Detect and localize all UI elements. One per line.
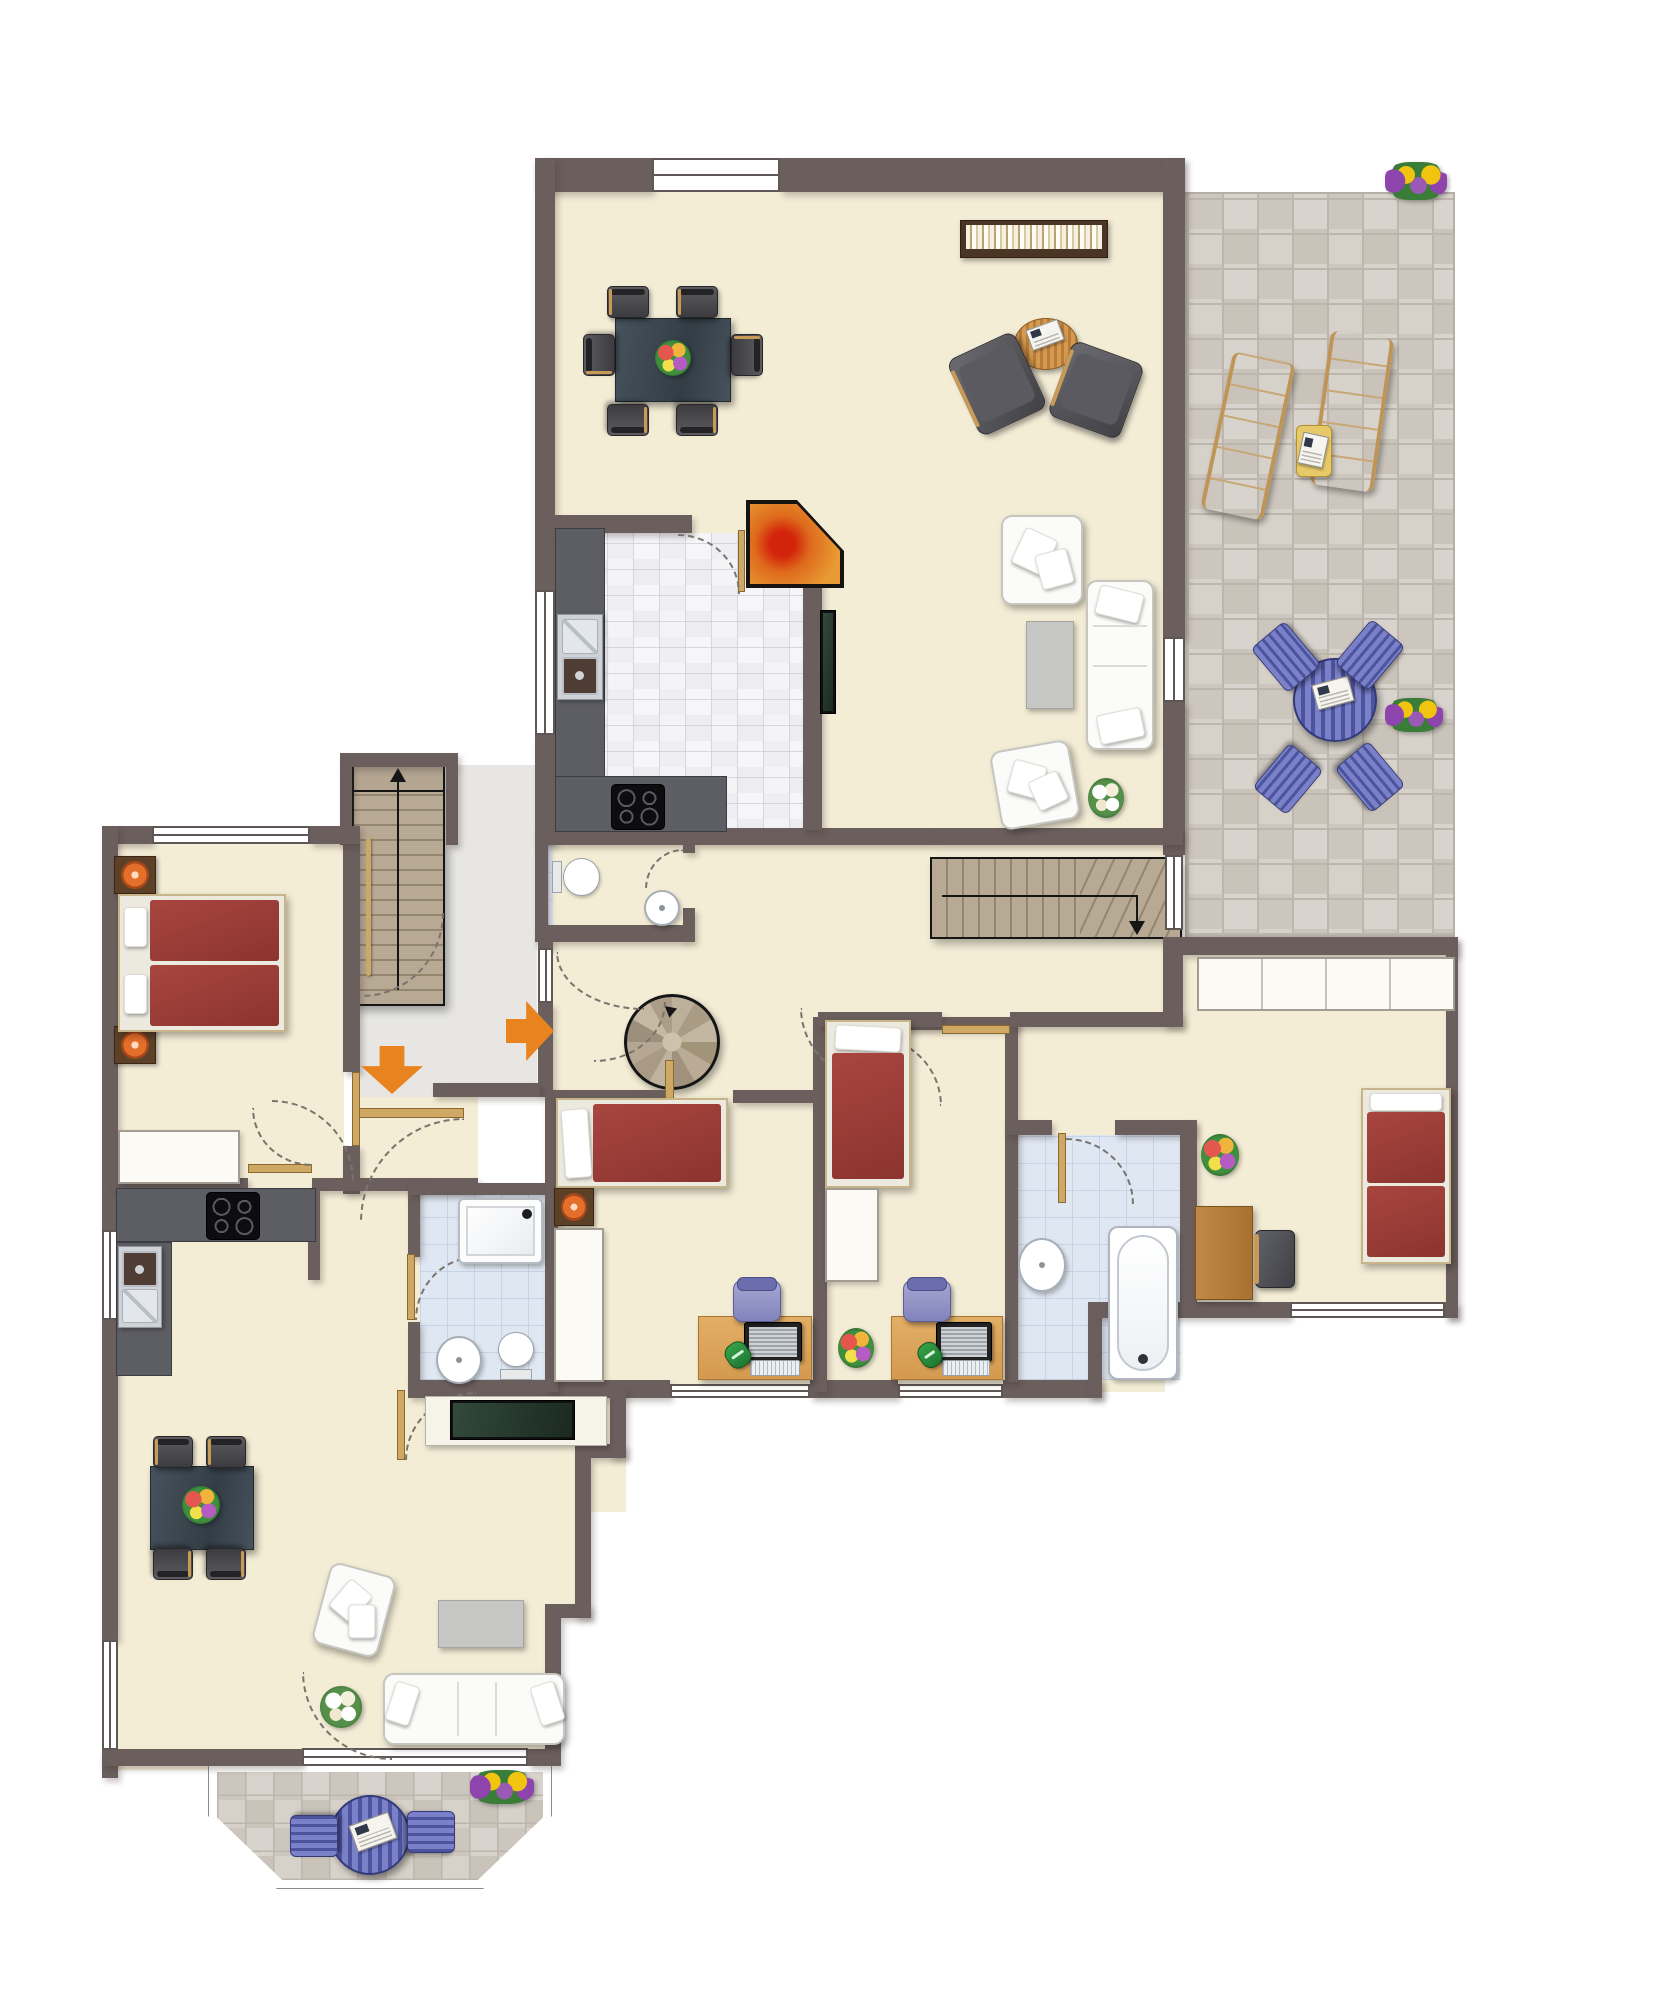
duvet — [150, 965, 280, 1026]
wall — [733, 1090, 813, 1103]
cushion — [1096, 707, 1146, 746]
wall — [343, 842, 360, 1072]
window — [302, 1748, 528, 1766]
door-leaf — [942, 1025, 1010, 1034]
pillow — [124, 907, 147, 947]
stair-direction-line — [1136, 895, 1138, 923]
office-chair — [733, 1280, 781, 1322]
drainboard — [122, 1289, 157, 1323]
dining-chair — [206, 1436, 246, 1468]
vanity-desk — [1195, 1206, 1253, 1300]
cushion — [1034, 548, 1075, 591]
wall — [1005, 1120, 1052, 1135]
single-bed — [825, 1020, 911, 1188]
computer-monitor — [744, 1322, 802, 1362]
wall — [535, 158, 555, 590]
nightstand — [114, 856, 156, 894]
kitchen-sink — [118, 1246, 162, 1328]
window — [1165, 855, 1183, 930]
wall — [1010, 1012, 1183, 1027]
keyboard — [750, 1360, 800, 1376]
flower-box — [1385, 698, 1443, 732]
wall — [1163, 955, 1183, 1027]
flowers — [320, 1686, 362, 1728]
pillow — [1370, 1093, 1442, 1110]
flower-box — [470, 1770, 534, 1804]
shower — [458, 1198, 543, 1264]
double-bed — [118, 894, 286, 1032]
staircase — [930, 857, 1182, 939]
chair — [1255, 1230, 1295, 1288]
table-lamp — [561, 1193, 588, 1222]
flowers — [182, 1486, 220, 1524]
wall — [446, 765, 458, 845]
stair-run — [932, 859, 1080, 937]
seat-lines — [1093, 625, 1147, 705]
dining-chair — [731, 334, 763, 376]
door-leaf — [397, 1390, 405, 1460]
built-in-wardrobe — [1197, 957, 1455, 1011]
washbasin — [644, 890, 680, 926]
dining-chair — [607, 404, 649, 436]
books — [966, 225, 1102, 249]
wardrobe — [554, 1228, 604, 1382]
duvet — [832, 1053, 904, 1179]
window — [652, 158, 780, 192]
table-lamp — [121, 1031, 149, 1060]
window — [898, 1384, 1003, 1398]
single-bed — [556, 1098, 728, 1188]
pillow — [835, 1024, 902, 1052]
dining-chair — [153, 1436, 193, 1468]
wardrobe — [825, 1188, 879, 1282]
cooktop — [611, 784, 665, 830]
wall — [932, 828, 1183, 845]
door-leaf — [352, 1072, 360, 1146]
dining-chair — [583, 334, 615, 376]
dining-chair — [676, 286, 718, 318]
duvet — [1367, 1112, 1444, 1183]
coffee-table — [1026, 621, 1074, 709]
window — [1163, 637, 1185, 702]
patio-chair — [290, 1815, 338, 1857]
duvet — [150, 900, 280, 961]
window — [535, 590, 555, 735]
wall — [340, 753, 458, 767]
wall — [538, 940, 553, 948]
bathtub — [1108, 1226, 1178, 1380]
sofa — [383, 1673, 565, 1745]
basin — [562, 657, 599, 695]
bookshelf — [960, 220, 1108, 258]
wall — [408, 1322, 420, 1384]
toilet — [552, 856, 602, 898]
computer-monitor — [936, 1322, 992, 1362]
dining-chair — [676, 404, 718, 436]
cooktop — [206, 1192, 260, 1240]
coffee-table — [438, 1600, 524, 1648]
dining-chair — [206, 1548, 246, 1580]
wall — [535, 925, 685, 942]
window — [102, 1640, 118, 1750]
flowers — [1088, 778, 1124, 818]
window — [152, 826, 310, 844]
pillow — [124, 974, 147, 1014]
flowers — [838, 1328, 874, 1368]
handrail — [366, 838, 371, 976]
stair-down-arrow-icon — [1129, 921, 1145, 935]
patio-chair — [407, 1811, 455, 1853]
keyboard — [942, 1360, 990, 1376]
basin — [122, 1251, 157, 1287]
nightstand — [554, 1188, 594, 1226]
door-leaf — [407, 1254, 415, 1320]
wall — [1005, 1022, 1018, 1382]
wall — [780, 158, 1183, 192]
wall — [433, 1083, 540, 1097]
wall — [545, 1604, 591, 1618]
office-chair — [903, 1280, 951, 1322]
window — [670, 1384, 810, 1398]
table-lamp — [121, 861, 149, 890]
floor-plan — [0, 0, 1669, 2000]
bowl — [563, 858, 600, 897]
wall — [1163, 937, 1458, 955]
armchair — [989, 739, 1082, 832]
stair-direction-line — [942, 895, 1138, 897]
cushion — [348, 1604, 375, 1638]
cushion — [385, 1680, 421, 1726]
wall — [102, 1749, 302, 1766]
tv — [820, 610, 836, 714]
wall — [575, 1458, 591, 1618]
toilet — [494, 1331, 538, 1381]
flowers — [655, 340, 691, 376]
bowl — [498, 1332, 533, 1367]
cistern — [500, 1369, 532, 1380]
dining-chair — [153, 1548, 193, 1580]
kitchen-sink — [557, 614, 603, 700]
door-leaf — [358, 1108, 464, 1118]
door-leaf — [1058, 1133, 1066, 1203]
wall — [1163, 158, 1185, 637]
wall — [575, 1444, 626, 1458]
armchair — [1001, 515, 1083, 605]
window — [538, 948, 553, 1003]
washbasin — [436, 1336, 482, 1384]
wall — [683, 908, 695, 942]
flowers — [1201, 1134, 1239, 1176]
wall — [310, 826, 360, 844]
washbasin — [1018, 1238, 1066, 1292]
tv — [450, 1400, 575, 1440]
cistern — [552, 861, 562, 893]
wall — [528, 1749, 561, 1766]
stair-up-arrow-icon — [390, 768, 406, 782]
seat-lines — [421, 1682, 531, 1736]
duvet — [593, 1104, 721, 1181]
cushion — [1094, 584, 1145, 624]
drainboard — [562, 619, 599, 654]
pillow — [561, 1108, 593, 1179]
double-bed — [1361, 1088, 1451, 1264]
flower-box — [1385, 162, 1447, 200]
terrace-floor — [1185, 192, 1455, 937]
wardrobe — [118, 1130, 240, 1184]
window — [1290, 1302, 1445, 1318]
cushion — [529, 1680, 565, 1726]
dining-chair — [607, 286, 649, 318]
sofa — [1086, 580, 1154, 750]
wall — [683, 845, 695, 853]
duvet — [1367, 1186, 1444, 1257]
